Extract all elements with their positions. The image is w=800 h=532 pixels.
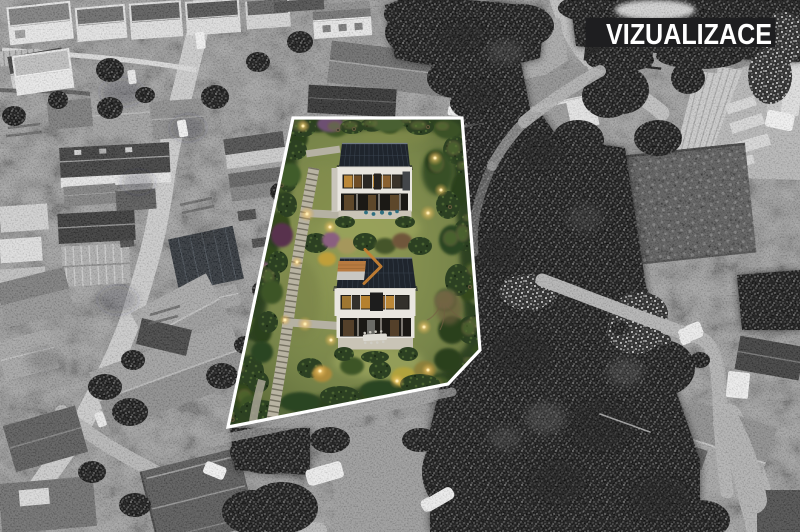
svg-text:VIZUALIZACE: VIZUALIZACE <box>606 19 772 51</box>
